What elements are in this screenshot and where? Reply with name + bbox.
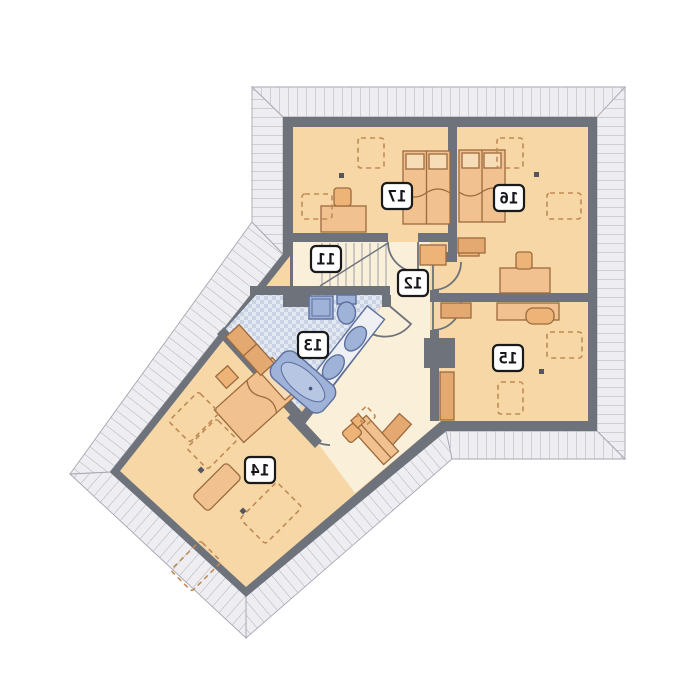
- svg-text:11: 11: [316, 250, 335, 269]
- room-label-11: 11: [311, 246, 341, 272]
- svg-text:15: 15: [498, 349, 517, 368]
- room-label-16: 16: [494, 185, 524, 211]
- room-label-15: 15: [493, 345, 523, 371]
- room-label-17: 17: [382, 183, 412, 209]
- room-label-14: 14: [245, 457, 275, 483]
- wardrobe-room15: [441, 303, 471, 318]
- svg-text:13: 13: [303, 336, 322, 355]
- floor-plan-drawing: 17 16 11 12 13 15 14: [0, 0, 700, 700]
- svg-text:16: 16: [499, 189, 518, 208]
- svg-text:14: 14: [250, 461, 269, 480]
- washing-machine: [309, 296, 333, 319]
- room-label-13: 13: [298, 332, 328, 358]
- toilet: [337, 295, 356, 324]
- floor-plan-canvas: 17 16 11 12 13 15 14: [0, 0, 700, 700]
- cabinet-hall: [420, 245, 446, 265]
- cabinet-room15: [440, 372, 454, 420]
- svg-text:17: 17: [387, 187, 406, 206]
- wardrobe-room16: [458, 238, 485, 253]
- room-label-12: 12: [398, 270, 428, 296]
- svg-text:12: 12: [403, 274, 422, 293]
